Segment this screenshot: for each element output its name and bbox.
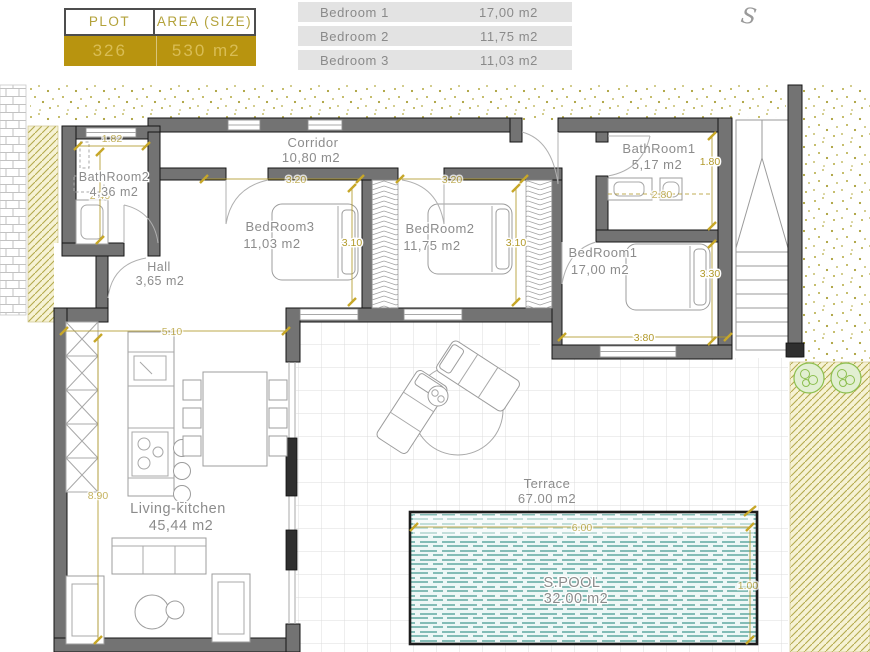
room-label-terrace: Terrace	[524, 476, 571, 491]
table-row: Bedroom 1 17,00 m2	[298, 2, 572, 22]
area-size-header-cell: AREA (SIZE)	[153, 8, 256, 36]
window-icon	[308, 120, 342, 130]
room-label-bedroom2: BedRoom2	[405, 221, 474, 236]
room-label-bathroom2: BathRoom2	[79, 170, 150, 184]
bedroom-row-value: 17,00 m2	[479, 5, 538, 20]
table-row: Bedroom 3 11,03 m2	[298, 50, 572, 70]
plot-header-cell: PLOT	[64, 8, 153, 36]
room-label-corridor: Corridor	[288, 135, 339, 150]
garden-planting-strip-left	[28, 126, 58, 322]
window-icon	[600, 346, 676, 357]
dim-label: 1.00	[738, 580, 759, 592]
dim-label: 2.80	[652, 189, 673, 201]
plot-table-values: 326 530 m2	[64, 36, 256, 66]
bedroom-row-value: 11,75 m2	[480, 29, 538, 44]
dining-table	[183, 372, 287, 466]
dim-label: 3.80	[634, 332, 655, 344]
bed-icon	[626, 244, 710, 310]
dim-label: 6.00	[572, 522, 593, 534]
dim-label: 3.20	[442, 174, 463, 186]
room-label-hall: Hall	[147, 260, 171, 274]
pantry-shelves	[66, 322, 98, 492]
bedroom-row-label: Bedroom 2	[320, 29, 389, 44]
room-area-bedroom3: 11,03 m2	[243, 236, 300, 251]
plot-area-value: 530 m2	[157, 36, 256, 66]
floor-plan-drawing: 1.82 2.40 3.20 3.20 3.10 3.10 1.80 2.80 …	[0, 0, 870, 652]
kitchen-counter	[128, 332, 174, 496]
room-label-living: Living-kitchen	[130, 501, 226, 517]
bedroom-row-label: Bedroom 1	[320, 5, 389, 20]
bush-icon	[831, 363, 861, 393]
room-area-pool: 32.00 m2	[544, 591, 608, 607]
dim-label: 5.10	[162, 326, 183, 338]
side-table-icon	[428, 386, 448, 406]
staircase	[736, 120, 788, 350]
handwritten-mark: S	[739, 3, 758, 30]
plot-table: PLOT AREA (SIZE) 326 530 m2	[64, 8, 256, 66]
room-area-living: 45,44 m2	[149, 518, 213, 534]
room-area-bathroom2: 4,36 m2	[90, 185, 139, 199]
bedroom-area-table: Bedroom 1 17,00 m2 Bedroom 2 11,75 m2 Be…	[298, 2, 572, 74]
room-label-bathroom1: BathRoom1	[622, 141, 695, 156]
plot-table-header: PLOT AREA (SIZE)	[64, 8, 256, 36]
dim-label: 1.82	[102, 133, 123, 145]
bush-icon	[794, 363, 824, 393]
dim-label: 1.80	[700, 156, 721, 168]
dim-label: 3.20	[286, 174, 307, 186]
dim-label: 3.10	[342, 237, 363, 249]
room-area-hall: 3,65 m2	[136, 274, 185, 288]
dim-label: 3.30	[700, 268, 721, 280]
room-area-corridor: 10,80 m2	[282, 150, 340, 165]
garden-planting-area-right	[790, 362, 870, 652]
room-area-bedroom2: 11,75 m2	[403, 238, 460, 253]
floor-plan-page: 1.82 2.40 3.20 3.20 3.10 3.10 1.80 2.80 …	[0, 0, 870, 652]
bedroom-row-label: Bedroom 3	[320, 53, 389, 68]
room-label-bedroom3: BedRoom3	[245, 219, 314, 234]
dim-label: 3.10	[506, 237, 527, 249]
window-icon	[300, 309, 358, 320]
table-row: Bedroom 2 11,75 m2	[298, 26, 572, 46]
room-area-terrace: 67.00 m2	[518, 491, 576, 506]
window-icon	[228, 120, 260, 130]
garden-brick-wall	[0, 85, 26, 315]
room-label-bedroom1: BedRoom1	[568, 245, 637, 260]
room-label-pool: S.POOL	[544, 575, 601, 591]
bedroom-row-value: 11,03 m2	[480, 53, 538, 68]
dim-label: 8.90	[88, 490, 109, 502]
plot-number-value: 326	[64, 36, 157, 66]
window-icon	[404, 309, 462, 320]
room-area-bathroom1: 5,17 m2	[632, 157, 682, 172]
room-area-bedroom1: 17,00 m2	[571, 262, 629, 277]
